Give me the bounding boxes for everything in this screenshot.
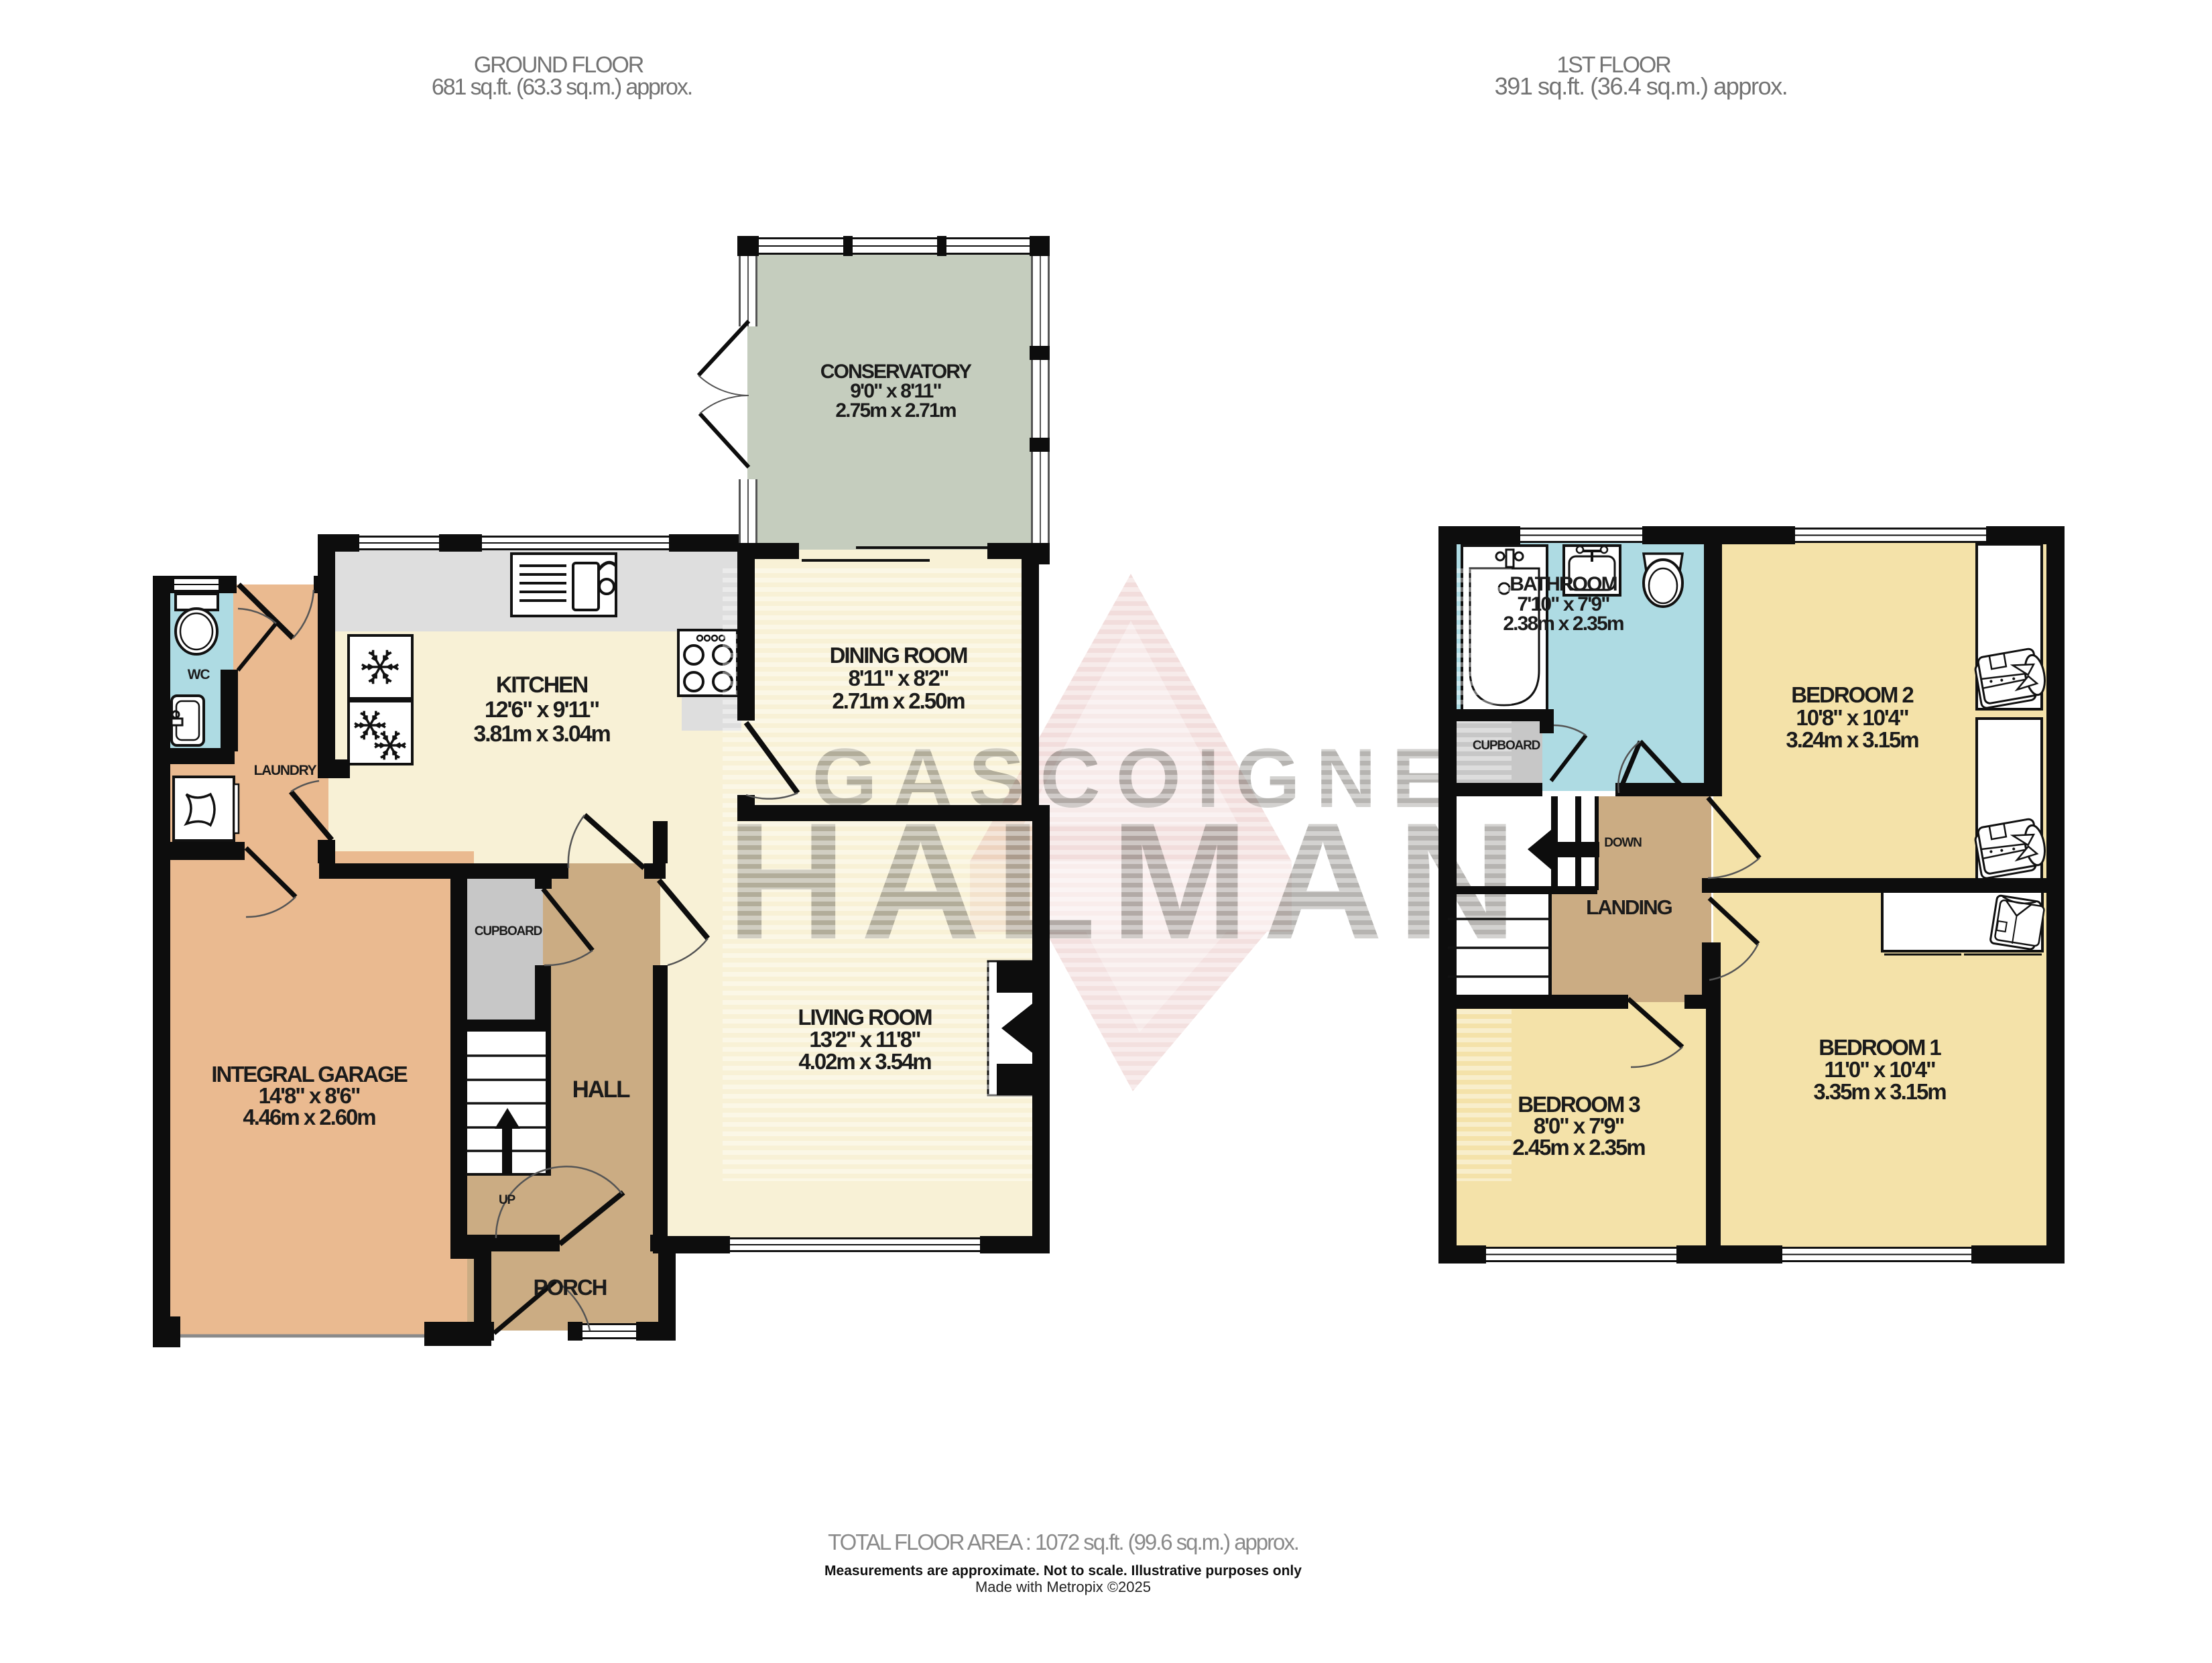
svg-text:WC: WC — [188, 667, 210, 682]
svg-text:CUPBOARD: CUPBOARD — [1473, 739, 1540, 753]
svg-text:3.35m x 3.15m: 3.35m x 3.15m — [1813, 1079, 1946, 1104]
svg-text:HALL: HALL — [572, 1076, 630, 1103]
svg-text:2.38m x 2.35m: 2.38m x 2.35m — [1503, 613, 1623, 635]
svg-text:CUPBOARD: CUPBOARD — [475, 924, 542, 938]
svg-text:8'11" x 8'2": 8'11" x 8'2" — [848, 666, 948, 690]
svg-text:BEDROOM 2: BEDROOM 2 — [1791, 682, 1914, 707]
svg-text:LAUNDRY: LAUNDRY — [254, 763, 317, 778]
svg-text:LANDING: LANDING — [1586, 896, 1672, 919]
svg-text:391 sq.ft. (36.4 sq.m.) approx: 391 sq.ft. (36.4 sq.m.) approx. — [1495, 72, 1788, 100]
svg-text:10'8" x 10'4": 10'8" x 10'4" — [1796, 705, 1908, 730]
svg-text:12'6" x 9'11": 12'6" x 9'11" — [485, 697, 599, 723]
svg-text:2.75m x 2.71m: 2.75m x 2.71m — [835, 399, 955, 422]
svg-text:TOTAL FLOOR AREA : 1072 sq.ft.: TOTAL FLOOR AREA : 1072 sq.ft. (99.6 sq.… — [828, 1530, 1298, 1554]
svg-text:3.24m x 3.15m: 3.24m x 3.15m — [1786, 727, 1918, 752]
svg-text:Made with Metropix ©2025: Made with Metropix ©2025 — [975, 1579, 1151, 1595]
svg-text:13'2" x 11'8": 13'2" x 11'8" — [809, 1027, 920, 1052]
svg-text:DOWN: DOWN — [1604, 836, 1642, 850]
svg-text:2.45m x 2.35m: 2.45m x 2.35m — [1512, 1135, 1645, 1160]
svg-text:681 sq.ft. (63.3 sq.m.) approx: 681 sq.ft. (63.3 sq.m.) approx. — [432, 74, 692, 100]
svg-text:BEDROOM 1: BEDROOM 1 — [1819, 1035, 1941, 1060]
svg-text:2.71m x 2.50m: 2.71m x 2.50m — [832, 688, 965, 713]
svg-text:PORCH: PORCH — [534, 1275, 607, 1300]
svg-text:LIVING ROOM: LIVING ROOM — [798, 1005, 932, 1030]
svg-text:11'0" x 10'4": 11'0" x 10'4" — [1824, 1057, 1935, 1082]
svg-text:BATHROOM: BATHROOM — [1510, 573, 1617, 595]
svg-text:KITCHEN: KITCHEN — [496, 672, 588, 698]
svg-text:3.81m x 3.04m: 3.81m x 3.04m — [473, 721, 610, 747]
svg-text:Measurements are approximate.: Measurements are approximate. Not to sca… — [824, 1563, 1302, 1579]
svg-text:4.46m x 2.60m: 4.46m x 2.60m — [243, 1105, 375, 1129]
svg-text:4.02m x 3.54m: 4.02m x 3.54m — [798, 1049, 931, 1074]
svg-text:DINING ROOM: DINING ROOM — [830, 643, 967, 668]
svg-text:UP: UP — [499, 1193, 516, 1207]
